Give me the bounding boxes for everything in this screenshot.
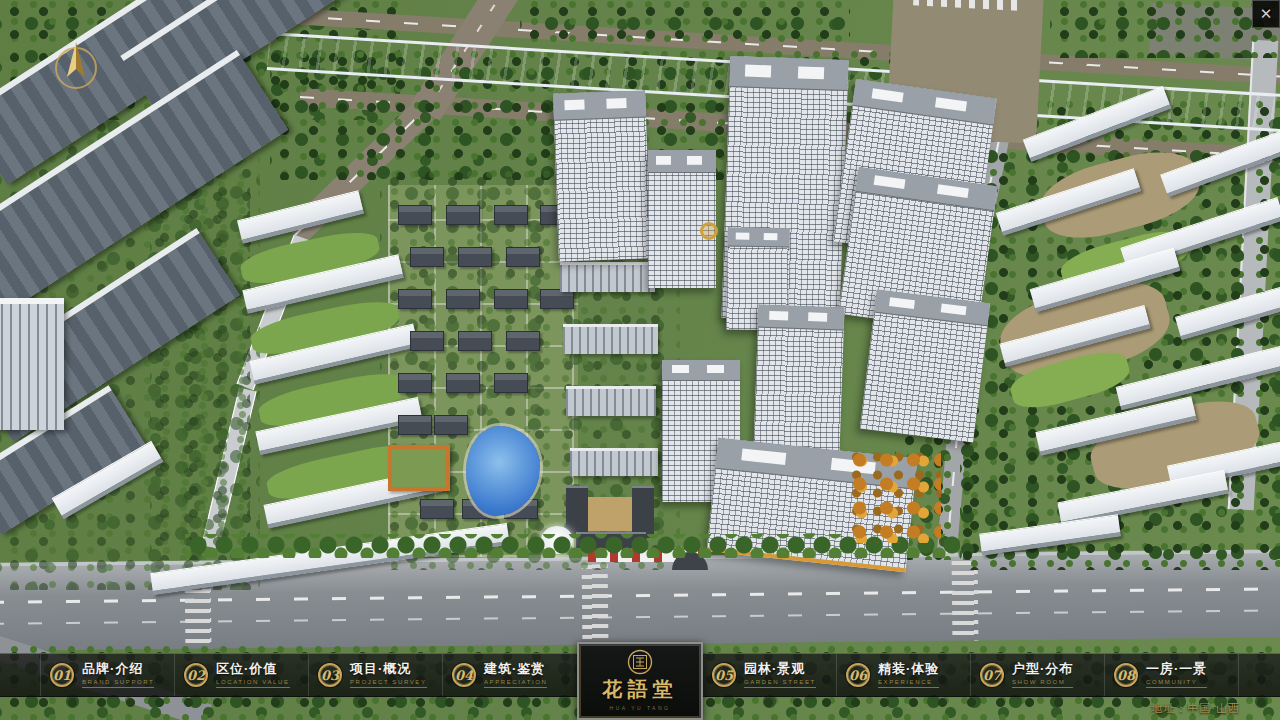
building-midrise xyxy=(563,324,658,354)
courtyard-house xyxy=(446,373,480,393)
nav-label-en: SHOW ROOM xyxy=(1012,679,1073,689)
nav-number-badge: 01 xyxy=(50,663,74,687)
nav-label-zh: 品牌·介绍 xyxy=(82,662,154,677)
hua-yu-tang-seal-icon xyxy=(627,649,653,675)
entrance-roof xyxy=(632,486,654,538)
entrance-court xyxy=(583,497,635,531)
logo-caption: HUA YU TANG xyxy=(610,705,671,711)
crosswalk xyxy=(582,564,609,644)
courtyard-house xyxy=(398,289,432,309)
footer-nav-right: 05 园林·景观GARDEN STREET 06 精装·体验EXPERIENCE… xyxy=(702,653,1280,697)
street-trees xyxy=(185,534,960,558)
nav-number-badge: 02 xyxy=(184,663,208,687)
nav-item-brand[interactable]: 01 品牌·介绍BRAND SUPPORT xyxy=(40,654,174,696)
clubhouse xyxy=(388,445,450,491)
nav-label-zh: 户型·分布 xyxy=(1012,662,1073,677)
nav-item-architecture[interactable]: 04 建筑·鉴赏APPRECIATION xyxy=(442,654,576,696)
nav-item-floorplan[interactable]: 07 户型·分布SHOW ROOM xyxy=(970,654,1104,696)
nav-number-badge: 07 xyxy=(980,663,1004,687)
nav-item-garden[interactable]: 05 园林·景观GARDEN STREET xyxy=(702,654,836,696)
nav-item-interior[interactable]: 06 精装·体验EXPERIENCE xyxy=(836,654,970,696)
project-logo-button[interactable]: 花語堂 HUA YU TANG xyxy=(577,642,703,720)
building-tower xyxy=(860,290,990,443)
sales-app-window: ✕ 01 品牌·介绍BRAND SUPPORT 02 区位·价值LOCATION… xyxy=(0,0,1280,720)
logo-name: 花語堂 xyxy=(603,676,678,703)
gold-sculpture xyxy=(700,222,718,240)
building-tower xyxy=(648,150,716,288)
building-midrise xyxy=(560,262,655,292)
courtyard-house xyxy=(458,247,492,267)
nav-label-en: PROJECT SURVEY xyxy=(350,679,427,689)
nav-item-project[interactable]: 03 项目·概况PROJECT SURVEY xyxy=(308,654,442,696)
project-address: 地址：中国·山西 xyxy=(1151,701,1240,716)
nav-label-en: APPRECIATION xyxy=(484,679,547,689)
aerial-render-view[interactable] xyxy=(0,0,1280,720)
courtyard-house xyxy=(458,331,492,351)
courtyard-house xyxy=(398,373,432,393)
courtyard-house xyxy=(540,289,574,309)
courtyard-house xyxy=(494,205,528,225)
building-white-tower xyxy=(0,298,64,430)
north-compass-arrow-icon xyxy=(50,36,102,98)
building-tower xyxy=(553,90,651,261)
building-midrise xyxy=(566,386,656,416)
footer-nav-left: 01 品牌·介绍BRAND SUPPORT 02 区位·价值LOCATION V… xyxy=(0,653,578,697)
close-button[interactable]: ✕ xyxy=(1252,0,1280,28)
nav-label-zh: 园林·景观 xyxy=(744,662,816,677)
crosswalk xyxy=(952,560,979,640)
nav-label-en: EXPERIENCE xyxy=(878,679,939,689)
courtyard-house xyxy=(410,247,444,267)
trees xyxy=(1050,0,1280,58)
nav-label-zh: 区位·价值 xyxy=(216,662,290,677)
autumn-trees xyxy=(846,448,941,543)
nav-label-zh: 一房·一景 xyxy=(1146,662,1207,677)
building-midrise xyxy=(570,448,658,476)
nav-label-en: GARDEN STREET xyxy=(744,679,816,689)
courtyard-house xyxy=(398,415,432,435)
building-tower xyxy=(753,305,844,456)
crosswalk xyxy=(913,0,1023,11)
courtyard-house xyxy=(434,415,468,435)
nav-label-en: LOCATION VALUE xyxy=(216,679,290,689)
nav-number-badge: 06 xyxy=(846,663,870,687)
courtyard-house xyxy=(410,331,444,351)
nav-label-en: BRAND SUPPORT xyxy=(82,679,154,689)
nav-item-views[interactable]: 08 一房·一景COMMUNITY xyxy=(1104,654,1238,696)
nav-number-badge: 08 xyxy=(1114,663,1138,687)
nav-number-badge: 04 xyxy=(452,663,476,687)
nav-label-zh: 精装·体验 xyxy=(878,662,939,677)
nav-number-badge: 03 xyxy=(318,663,342,687)
nav-label-zh: 项目·概况 xyxy=(350,662,427,677)
courtyard-house xyxy=(506,331,540,351)
nav-label-en: COMMUNITY xyxy=(1146,679,1207,689)
nav-number-badge: 05 xyxy=(712,663,736,687)
courtyard-house xyxy=(494,373,528,393)
nav-item-location[interactable]: 02 区位·价值LOCATION VALUE xyxy=(174,654,308,696)
courtyard-house xyxy=(420,499,454,519)
courtyard-house xyxy=(446,205,480,225)
courtyard-house xyxy=(506,247,540,267)
courtyard-house xyxy=(494,289,528,309)
courtyard-house xyxy=(446,289,480,309)
trees xyxy=(520,0,850,42)
nav-label-zh: 建筑·鉴赏 xyxy=(484,662,547,677)
courtyard-house xyxy=(398,205,432,225)
